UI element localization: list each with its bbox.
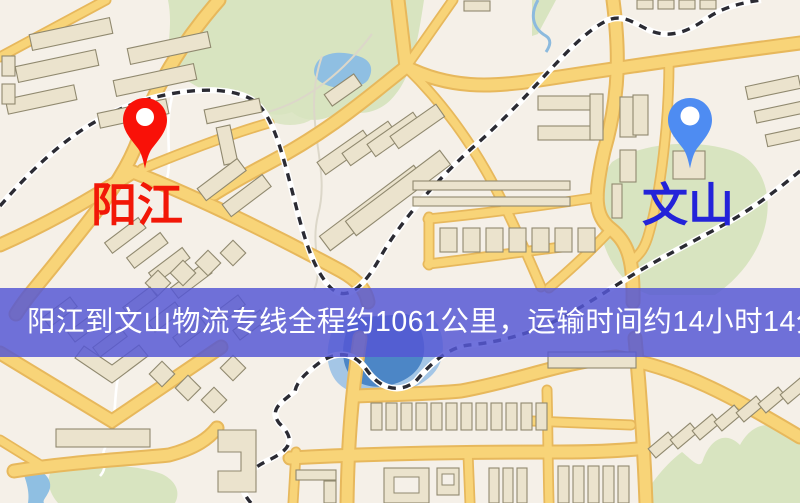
map-view[interactable]: 阳江 文山 阳江到文山物流专线全程约1061公里，运输时间约14小时14分钟.	[0, 0, 800, 503]
origin-pin-hole	[136, 108, 154, 126]
destination-label: 文山	[642, 180, 734, 231]
banner-text: 阳江到文山物流专线全程约1061公里，运输时间约14小时14分钟.	[27, 306, 800, 338]
route-info-banner: 阳江到文山物流专线全程约1061公里，运输时间约14小时14分钟.	[0, 288, 800, 357]
origin-label: 阳江	[91, 180, 183, 231]
destination-pin-hole	[681, 107, 700, 126]
